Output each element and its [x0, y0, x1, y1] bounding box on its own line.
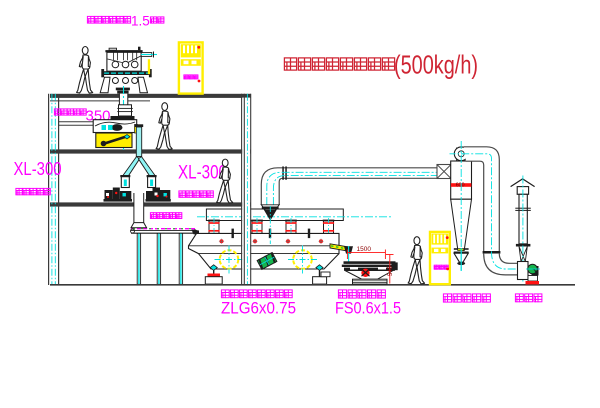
svg-text:FS0.6x1.5: FS0.6x1.5	[335, 299, 401, 318]
svg-text:545: 545	[388, 265, 394, 276]
svg-text:XL-300: XL-300	[178, 163, 227, 184]
svg-text:XL-300: XL-300	[14, 158, 62, 179]
svg-text:(500kg/h): (500kg/h)	[394, 50, 478, 80]
svg-text:ZLG6x0.75: ZLG6x0.75	[221, 299, 296, 318]
svg-text:1.5: 1.5	[131, 14, 150, 29]
svg-text:600: 600	[456, 183, 465, 189]
svg-text:1500: 1500	[357, 246, 372, 253]
